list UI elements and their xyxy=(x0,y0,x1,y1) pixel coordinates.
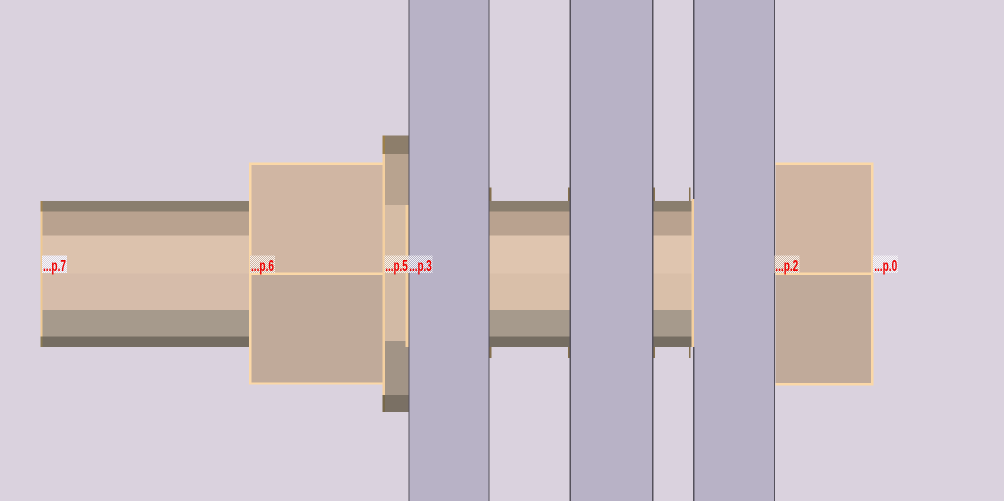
svg-text:...p.7: ...p.7 xyxy=(43,258,66,275)
svg-text:...p.5: ...p.5 xyxy=(385,258,408,275)
svg-text:...p.3: ...p.3 xyxy=(409,258,432,275)
svg-text:...p.0: ...p.0 xyxy=(874,258,897,275)
svg-text:...p.2: ...p.2 xyxy=(775,258,798,275)
svg-text:...p.6: ...p.6 xyxy=(251,258,274,275)
